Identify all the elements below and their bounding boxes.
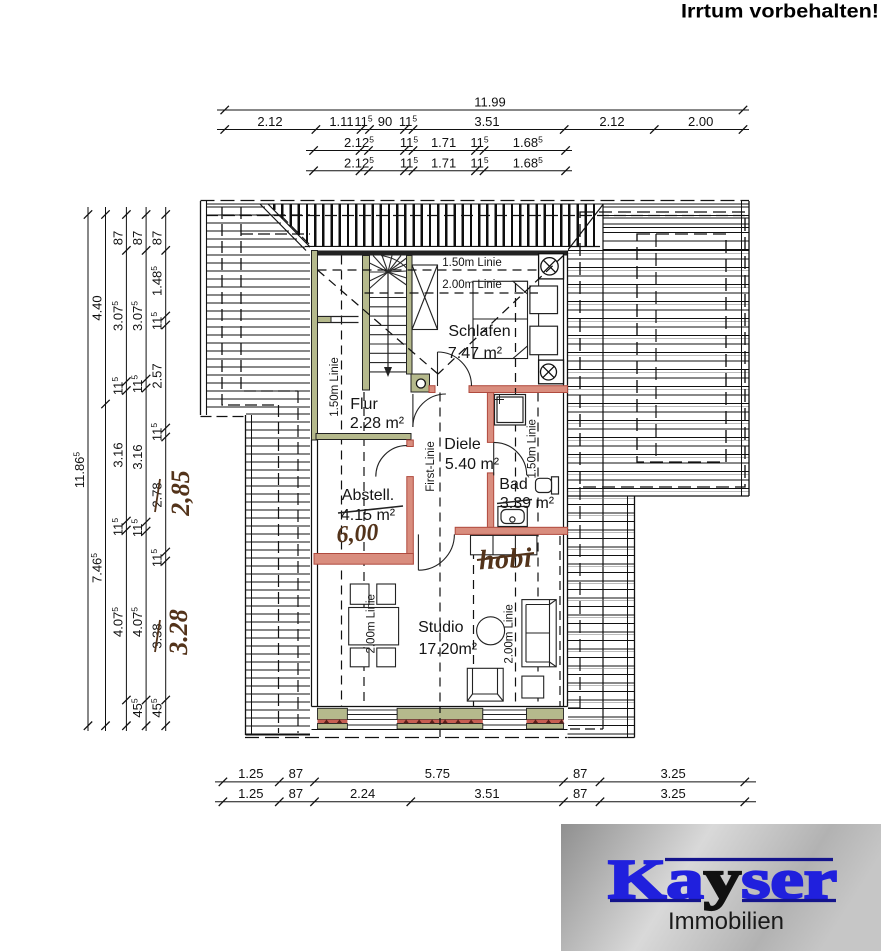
svg-text:Immobilien: Immobilien — [668, 908, 784, 935]
svg-text:Abstell.: Abstell. — [342, 487, 394, 504]
svg-text:Schlafen: Schlafen — [448, 323, 510, 340]
svg-text:11.99: 11.99 — [474, 95, 506, 110]
svg-text:87: 87 — [150, 231, 165, 245]
svg-text:1.11: 1.11 — [329, 114, 353, 129]
svg-text:87: 87 — [130, 231, 145, 245]
svg-text:Bad: Bad — [499, 476, 527, 493]
svg-text:1.50m Linie: 1.50m Linie — [527, 419, 539, 478]
svg-text:87: 87 — [289, 766, 303, 781]
svg-text:1.25: 1.25 — [238, 766, 263, 781]
svg-text:2.00m Linie: 2.00m Linie — [442, 279, 501, 291]
svg-text:2.00m Linie: 2.00m Linie — [366, 594, 378, 653]
svg-text:Studio: Studio — [418, 619, 463, 636]
svg-text:87: 87 — [573, 786, 587, 801]
svg-text:3.25: 3.25 — [660, 766, 685, 781]
svg-text:90: 90 — [378, 114, 392, 129]
svg-text:3.39 m²: 3.39 m² — [500, 495, 555, 512]
svg-text:2.00m Linie: 2.00m Linie — [504, 604, 516, 663]
svg-text:First-Linie: First-Linie — [425, 441, 437, 491]
svg-text:1.71: 1.71 — [431, 135, 456, 150]
svg-text:3.16: 3.16 — [130, 444, 145, 469]
svg-text:3.16: 3.16 — [110, 442, 125, 467]
svg-text:Irrtum vorbehalten!: Irrtum vorbehalten! — [681, 2, 879, 23]
svg-text:2.12: 2.12 — [599, 114, 624, 129]
svg-text:87: 87 — [110, 231, 125, 245]
svg-text:3.51: 3.51 — [474, 114, 499, 129]
svg-text:3.25: 3.25 — [660, 786, 685, 801]
svg-text:1.50m Linie: 1.50m Linie — [442, 257, 501, 269]
svg-text:7.47 m²: 7.47 m² — [448, 345, 503, 362]
svg-text:87: 87 — [573, 766, 587, 781]
svg-text:1.50m Linie: 1.50m Linie — [329, 357, 341, 416]
svg-text:87: 87 — [289, 786, 303, 801]
svg-text:3.51: 3.51 — [474, 786, 499, 801]
svg-text:2.28 m²: 2.28 m² — [350, 415, 405, 432]
svg-text:1.25: 1.25 — [238, 786, 263, 801]
svg-text:3.28: 3.28 — [164, 609, 193, 656]
svg-text:2.12: 2.12 — [257, 114, 282, 129]
svg-text:6,00: 6,00 — [336, 520, 380, 549]
svg-text:2.24: 2.24 — [350, 786, 375, 801]
svg-text:Flur: Flur — [350, 396, 378, 413]
svg-text:Diele: Diele — [444, 436, 481, 453]
svg-text:5.40 m²: 5.40 m² — [445, 456, 500, 473]
svg-text:1.71: 1.71 — [431, 155, 456, 170]
svg-text:4.40: 4.40 — [90, 295, 105, 320]
svg-text:11.865: 11.865 — [72, 452, 88, 489]
svg-text:5.75: 5.75 — [425, 766, 450, 781]
svg-text:17.20m²: 17.20m² — [418, 641, 477, 658]
svg-text:2.00: 2.00 — [688, 114, 713, 129]
svg-text:2,85: 2,85 — [166, 470, 195, 517]
svg-text:2.57: 2.57 — [150, 363, 165, 388]
